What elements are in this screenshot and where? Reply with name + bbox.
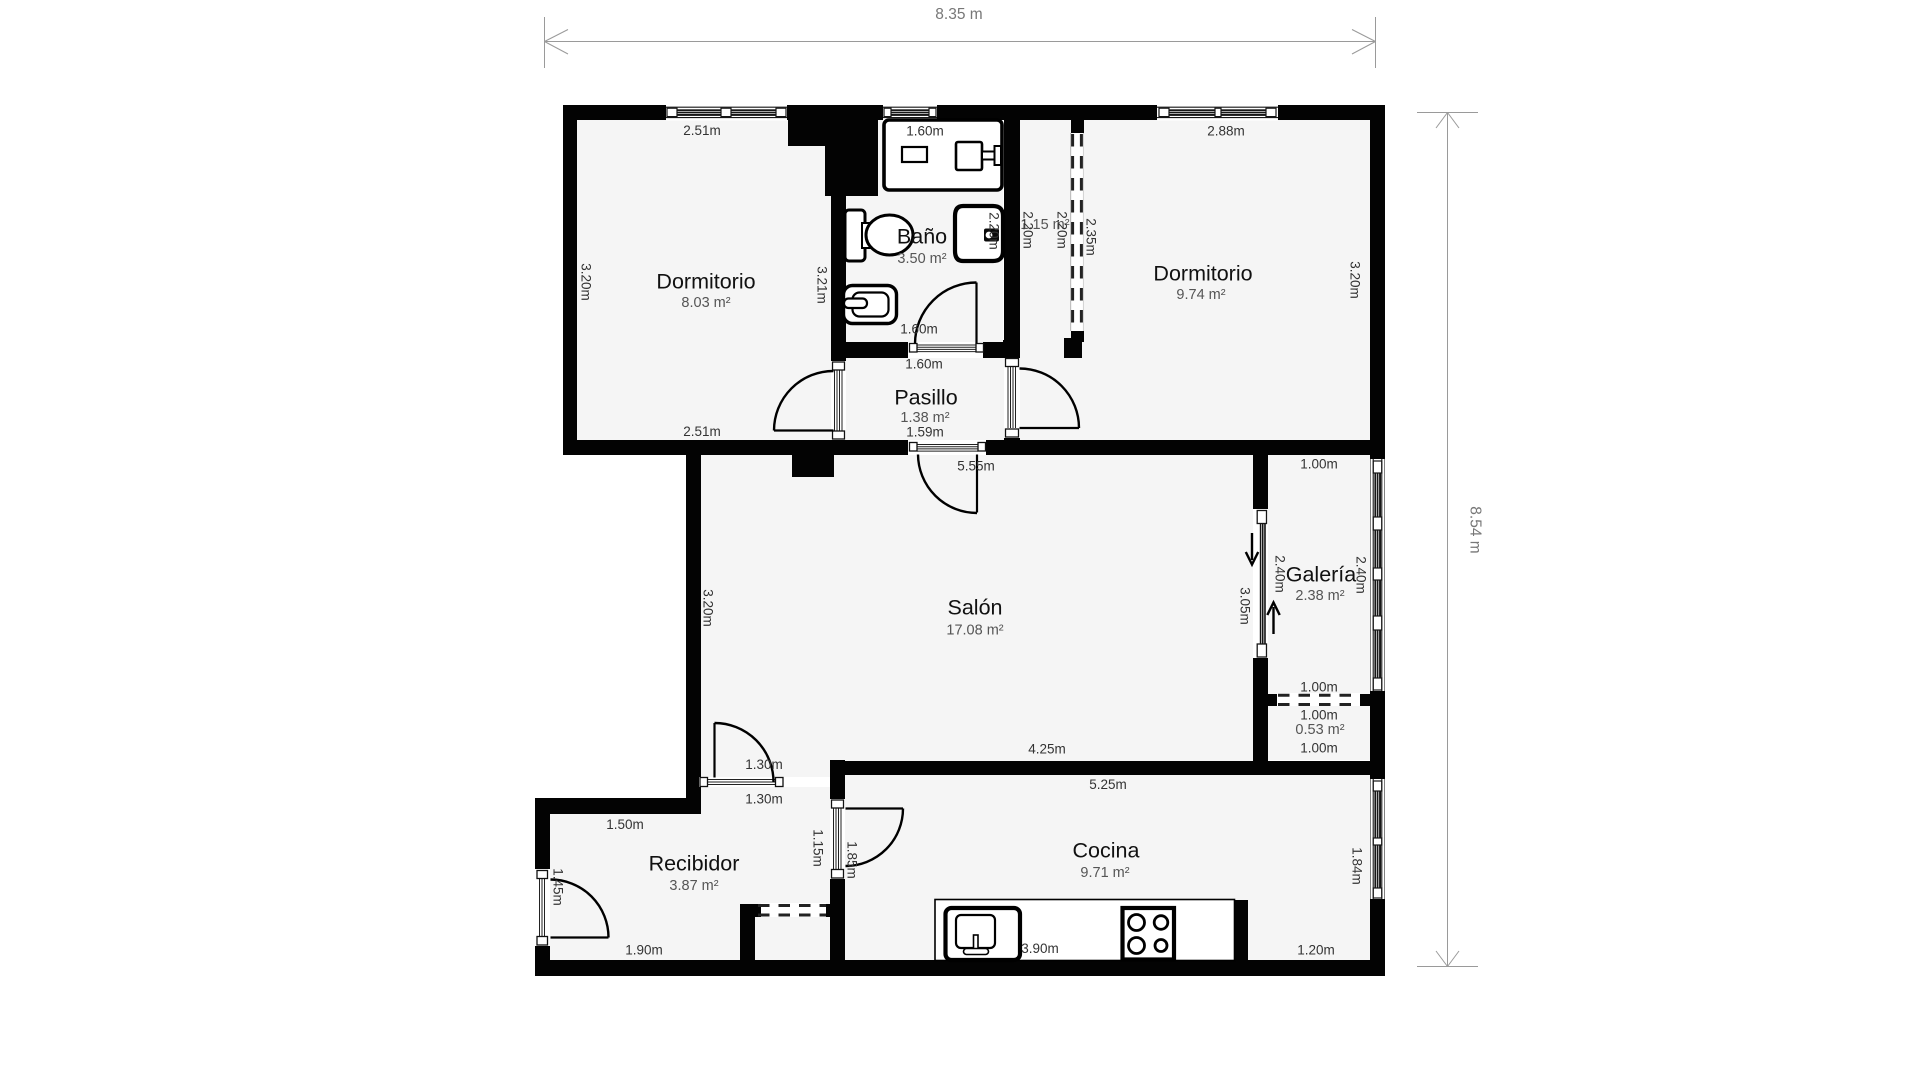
svg-text:1.15m: 1.15m	[810, 829, 825, 867]
svg-text:3.87 m²: 3.87 m²	[669, 878, 718, 894]
svg-text:3.21m: 3.21m	[814, 266, 829, 304]
svg-text:2.40m: 2.40m	[1353, 556, 1368, 594]
svg-text:1.00m: 1.00m	[1300, 680, 1338, 695]
svg-text:1.30m: 1.30m	[745, 757, 783, 772]
svg-text:3.05m: 3.05m	[1237, 587, 1252, 625]
svg-text:Cocina: Cocina	[1073, 839, 1140, 863]
svg-text:1.85m: 1.85m	[844, 841, 859, 879]
svg-text:2.35m: 2.35m	[1083, 218, 1098, 256]
svg-text:Dormitorio: Dormitorio	[1153, 262, 1252, 286]
svg-text:Dormitorio: Dormitorio	[656, 270, 755, 294]
svg-text:1.45m: 1.45m	[550, 868, 565, 906]
svg-text:1.00m: 1.00m	[1300, 741, 1338, 756]
svg-text:1.90m: 1.90m	[625, 943, 663, 958]
svg-text:8.03 m²: 8.03 m²	[681, 295, 730, 311]
svg-text:1.50m: 1.50m	[606, 817, 644, 832]
svg-text:2.38 m²: 2.38 m²	[1295, 588, 1344, 604]
svg-text:3.90m: 3.90m	[1021, 941, 1059, 956]
svg-text:0.53 m²: 0.53 m²	[1295, 722, 1344, 738]
svg-text:1.84m: 1.84m	[1349, 847, 1364, 885]
svg-text:8.35 m: 8.35 m	[935, 6, 982, 23]
svg-text:2.40m: 2.40m	[1272, 555, 1287, 593]
svg-text:Pasillo: Pasillo	[894, 386, 957, 410]
svg-text:1.00m: 1.00m	[1300, 457, 1338, 472]
svg-text:2.20m: 2.20m	[1020, 211, 1035, 249]
svg-text:9.74 m²: 9.74 m²	[1176, 287, 1225, 303]
svg-text:3.20m: 3.20m	[578, 263, 593, 301]
svg-text:17.08 m²: 17.08 m²	[946, 623, 1003, 639]
svg-text:4.25m: 4.25m	[1028, 742, 1066, 757]
svg-text:1.60m: 1.60m	[900, 322, 938, 337]
svg-text:2.88m: 2.88m	[1207, 124, 1245, 139]
svg-text:2.20m: 2.20m	[1054, 211, 1069, 249]
svg-text:Baño: Baño	[897, 225, 947, 249]
svg-text:9.71 m²: 9.71 m²	[1080, 865, 1129, 881]
svg-text:1.60m: 1.60m	[906, 124, 944, 139]
svg-text:3.20m: 3.20m	[1347, 261, 1362, 299]
svg-text:1.20m: 1.20m	[1297, 943, 1335, 958]
svg-text:Recibidor: Recibidor	[649, 852, 740, 876]
svg-text:5.55m: 5.55m	[957, 459, 995, 474]
svg-text:1.60m: 1.60m	[905, 357, 943, 372]
svg-text:3.50 m²: 3.50 m²	[897, 251, 946, 267]
svg-text:5.25m: 5.25m	[1089, 777, 1127, 792]
svg-text:1.00m: 1.00m	[1300, 708, 1338, 723]
svg-text:2.20m: 2.20m	[986, 212, 1001, 250]
svg-text:1.59m: 1.59m	[906, 425, 944, 440]
svg-text:2.51m: 2.51m	[683, 123, 721, 138]
svg-text:1.30m: 1.30m	[745, 792, 783, 807]
svg-text:Salón: Salón	[948, 596, 1003, 620]
svg-text:3.20m: 3.20m	[700, 589, 715, 627]
svg-text:Galería: Galería	[1286, 563, 1357, 587]
svg-text:2.51m: 2.51m	[683, 424, 721, 439]
svg-text:8.54 m: 8.54 m	[1467, 506, 1484, 553]
